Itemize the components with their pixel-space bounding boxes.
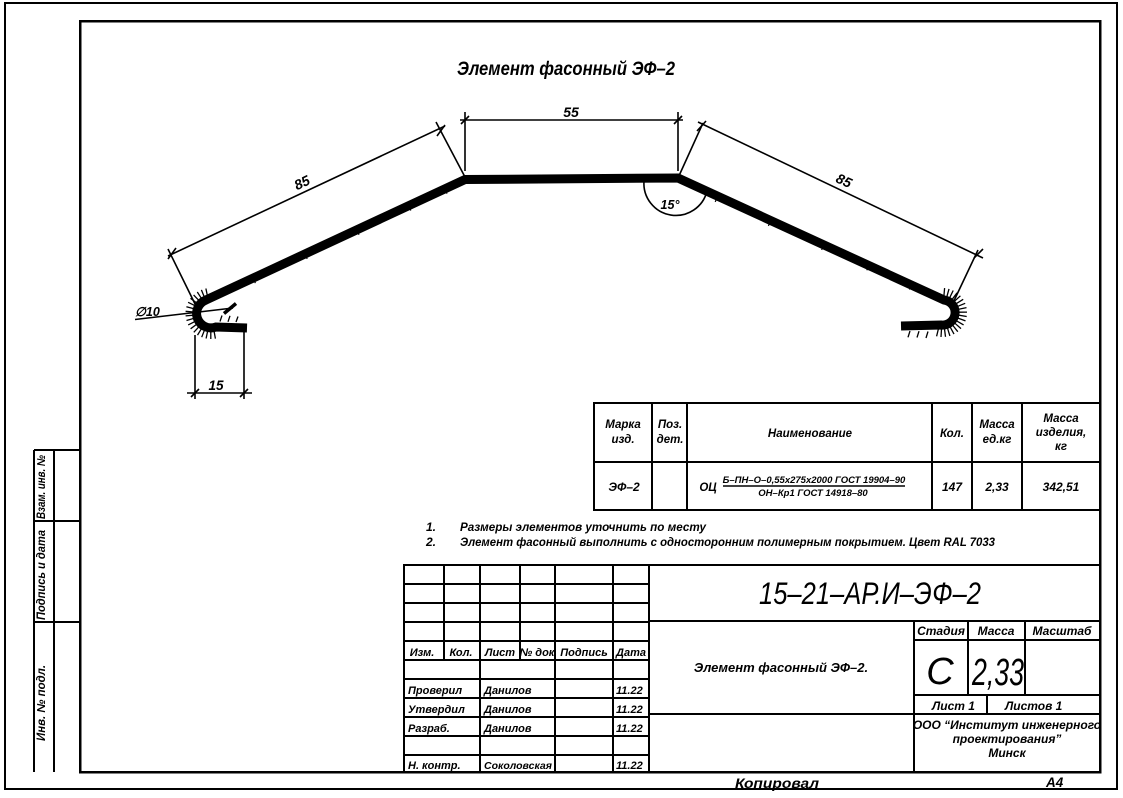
svg-text:147: 147 <box>942 480 963 494</box>
svg-text:∅10: ∅10 <box>135 305 160 319</box>
svg-text:Данилов: Данилов <box>483 723 532 735</box>
svg-text:Кол.: Кол. <box>450 647 473 659</box>
svg-text:Копировал: Копировал <box>735 775 819 791</box>
svg-text:Соколовская: Соколовская <box>484 760 552 772</box>
svg-text:кг: кг <box>1055 441 1067 453</box>
svg-text:дет.: дет. <box>657 434 684 446</box>
svg-text:2,33: 2,33 <box>971 652 1024 694</box>
svg-text:15–21–АР.И–ЭФ–2: 15–21–АР.И–ЭФ–2 <box>759 575 981 611</box>
svg-text:ЭФ–2: ЭФ–2 <box>608 480 640 494</box>
svg-text:55: 55 <box>563 104 579 120</box>
svg-text:Разраб.: Разраб. <box>408 723 450 735</box>
svg-text:Элемент фасонный ЭФ–2.: Элемент фасонный ЭФ–2. <box>694 660 868 675</box>
svg-text:ед.кг: ед.кг <box>983 434 1012 446</box>
svg-text:15°: 15° <box>661 198 681 212</box>
svg-text:Инв. № подл.: Инв. № подл. <box>36 665 48 741</box>
svg-text:2.: 2. <box>425 535 436 549</box>
svg-text:2,33: 2,33 <box>984 480 1009 494</box>
svg-text:342,51: 342,51 <box>1043 480 1080 494</box>
svg-text:Лист 1: Лист 1 <box>931 699 975 713</box>
svg-text:Размеры элементов уточнить по: Размеры элементов уточнить по месту <box>460 520 707 534</box>
svg-text:Данилов: Данилов <box>483 704 532 716</box>
svg-text:Дата: Дата <box>615 647 646 659</box>
svg-text:Элемент фасонный выполнить с о: Элемент фасонный выполнить с односторонн… <box>460 535 995 549</box>
svg-text:1.: 1. <box>426 520 436 534</box>
svg-text:Данилов: Данилов <box>483 685 532 697</box>
svg-text:11.22: 11.22 <box>616 704 643 716</box>
svg-text:Н. контр.: Н. контр. <box>408 760 461 772</box>
svg-text:Масса: Масса <box>979 419 1015 431</box>
svg-text:А4: А4 <box>1045 775 1064 790</box>
svg-text:Изм.: Изм. <box>410 647 435 659</box>
svg-text:ООО “Институт инженерного: ООО “Институт инженерного <box>913 718 1101 732</box>
svg-text:изд.: изд. <box>611 434 634 446</box>
svg-text:Подпись и дата: Подпись и дата <box>36 529 48 620</box>
svg-text:Листов 1: Листов 1 <box>1004 699 1063 713</box>
svg-text:Кол.: Кол. <box>940 428 964 440</box>
svg-text:15: 15 <box>208 378 224 393</box>
svg-text:№ док: № док <box>520 647 556 659</box>
svg-text:Проверил: Проверил <box>408 685 462 697</box>
svg-text:Подпись: Подпись <box>560 647 608 659</box>
svg-text:11.22: 11.22 <box>616 760 643 772</box>
svg-text:Взам. инв. №: Взам. инв. № <box>36 455 48 519</box>
svg-text:Минск: Минск <box>988 746 1026 760</box>
svg-text:Марка: Марка <box>605 419 641 431</box>
svg-text:11.22: 11.22 <box>616 685 643 697</box>
svg-text:Масса: Масса <box>1043 413 1079 425</box>
svg-text:Наименование: Наименование <box>768 428 853 440</box>
svg-text:проектирования”: проектирования” <box>953 732 1062 746</box>
svg-text:С: С <box>926 651 954 693</box>
svg-text:Утвердил: Утвердил <box>408 704 465 716</box>
svg-text:Масштаб: Масштаб <box>1033 624 1093 638</box>
svg-text:Поз.: Поз. <box>658 419 682 431</box>
svg-text:изделия,: изделия, <box>1036 427 1087 439</box>
svg-text:ОН–Кр1 ГОСТ 14918–80: ОН–Кр1 ГОСТ 14918–80 <box>758 488 868 499</box>
svg-text:Масса: Масса <box>978 624 1015 638</box>
svg-text:Б–ПН–О–0,55х275х2000 ГОСТ 1990: Б–ПН–О–0,55х275х2000 ГОСТ 19904–90 <box>723 475 906 486</box>
svg-text:11.22: 11.22 <box>616 723 643 735</box>
svg-text:ОЦ: ОЦ <box>699 482 717 494</box>
svg-text:Стадия: Стадия <box>917 624 965 638</box>
svg-text:Лист: Лист <box>484 647 515 659</box>
svg-text:Элемент фасонный ЭФ–2: Элемент фасонный ЭФ–2 <box>457 59 675 80</box>
